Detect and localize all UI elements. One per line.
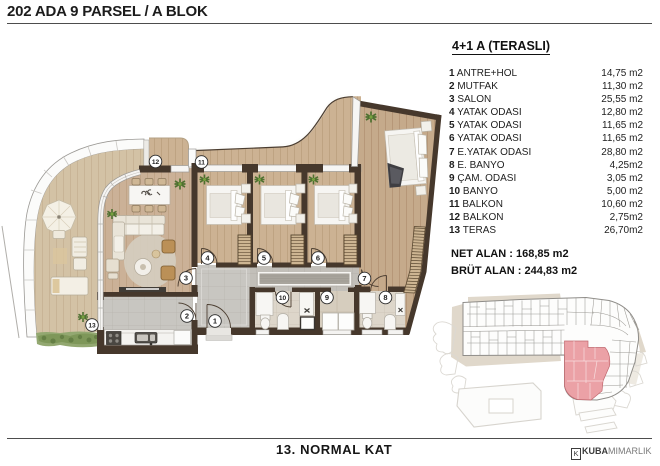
svg-text:13: 13 bbox=[88, 323, 96, 330]
svg-text:10: 10 bbox=[279, 295, 287, 302]
svg-text:3: 3 bbox=[184, 274, 188, 283]
svg-text:6: 6 bbox=[316, 254, 320, 263]
svg-text:8: 8 bbox=[383, 293, 387, 302]
svg-text:12: 12 bbox=[152, 159, 160, 166]
svg-text:11: 11 bbox=[198, 160, 205, 167]
svg-text:1: 1 bbox=[213, 317, 217, 326]
svg-text:7: 7 bbox=[362, 274, 366, 283]
svg-text:5: 5 bbox=[262, 254, 266, 263]
svg-text:2: 2 bbox=[185, 312, 189, 321]
svg-text:9: 9 bbox=[325, 293, 329, 302]
